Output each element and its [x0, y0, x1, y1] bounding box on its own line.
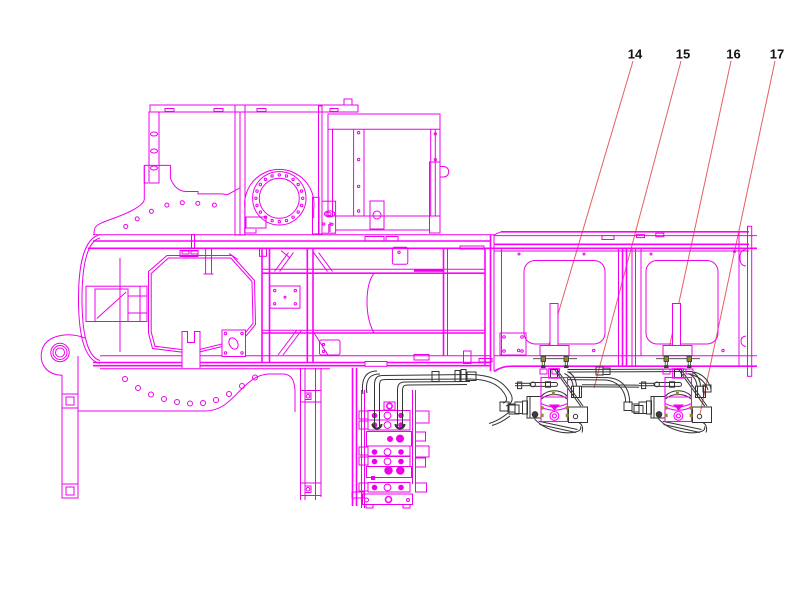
svg-text:15: 15 — [676, 47, 690, 62]
svg-text:17: 17 — [770, 47, 784, 62]
svg-text:16: 16 — [726, 47, 740, 62]
svg-text:14: 14 — [628, 47, 643, 62]
